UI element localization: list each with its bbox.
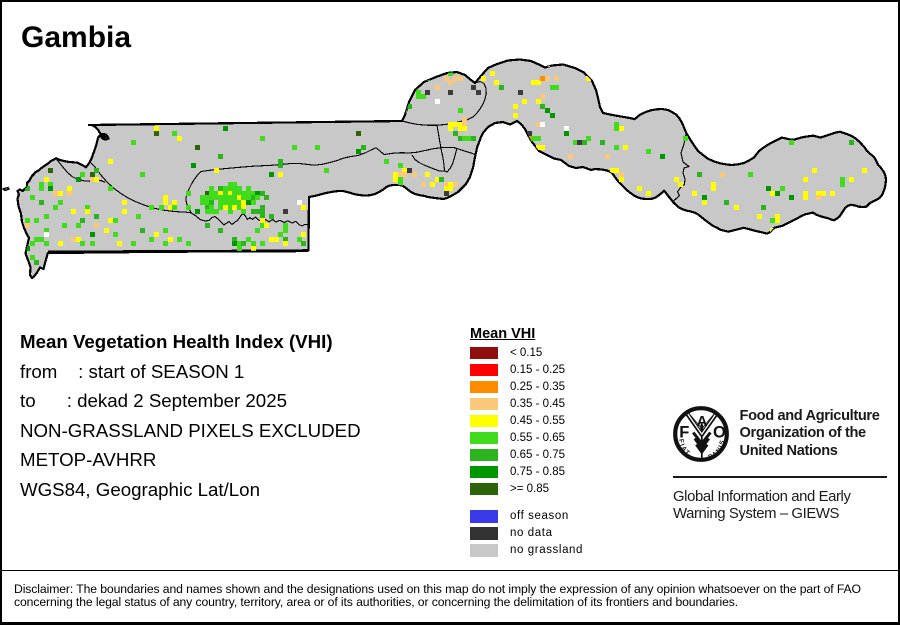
svg-text:F: F bbox=[679, 423, 689, 441]
